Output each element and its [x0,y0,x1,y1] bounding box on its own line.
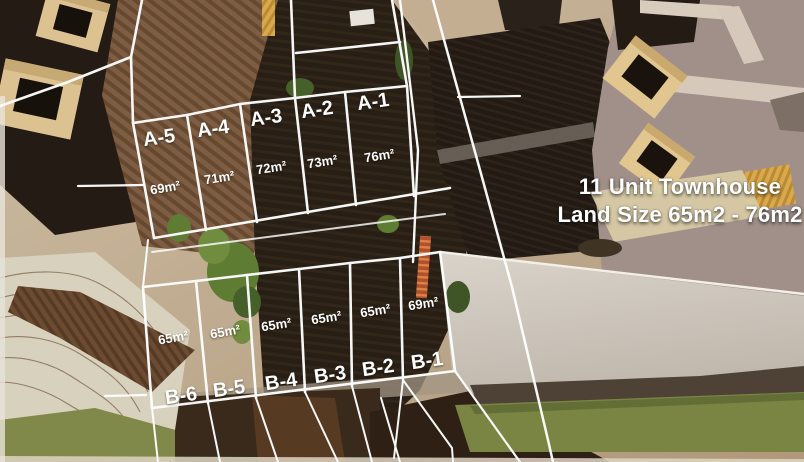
title-overlay: 11 Unit Townhouse Land Size 65m2 - 76m2 [552,173,804,229]
render-canvas: A-5 A-4 A-3 A-2 A-1 69m² 71m² 72m² 73m² … [0,0,804,462]
lot-a-name: A-2 [300,97,335,123]
lot-b-name: B-2 [361,355,396,381]
lot-b-name: B-6 [164,383,199,409]
site-plan-image: A-5 A-4 A-3 A-2 A-1 69m² 71m² 72m² 73m² … [0,0,804,462]
survey-tick [78,185,143,186]
lot-a-name: A-4 [196,116,232,142]
lot-b-name: B-5 [212,376,247,402]
title-line-2: Land Size 65m2 - 76m2 [552,201,804,229]
wood-strip-top [262,0,275,36]
left-border-strip [0,96,5,462]
survey-tick [458,96,520,97]
survey-tick [105,395,146,396]
lot-a-name: A-3 [249,105,284,131]
white-car [349,9,374,26]
lot-a-name: A-5 [142,125,177,151]
lot-b-name: B-1 [410,348,445,374]
lot-a-name: A-1 [356,89,391,115]
lot-b-name: B-4 [264,369,300,395]
title-line-1: 11 Unit Townhouse [552,173,804,201]
lot-b-name: B-3 [313,362,348,388]
